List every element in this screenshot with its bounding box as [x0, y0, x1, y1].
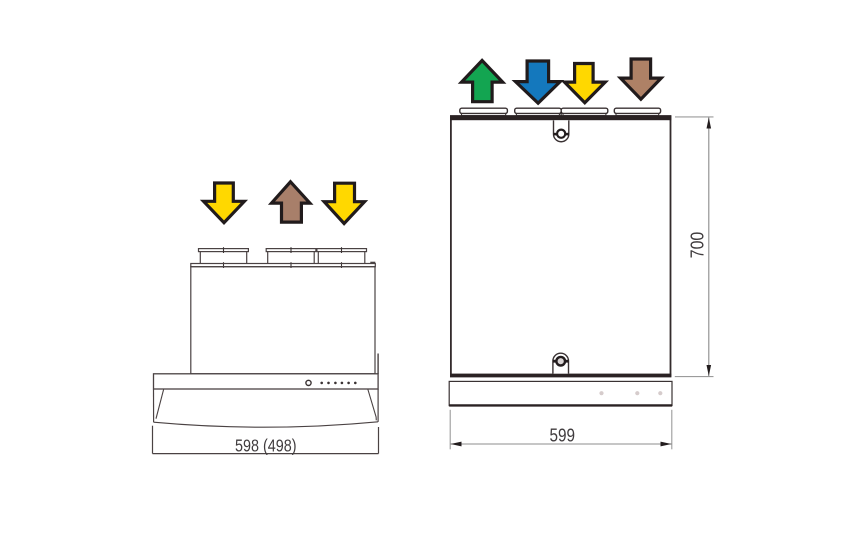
svg-text:599: 599 [550, 424, 576, 445]
svg-text:700: 700 [687, 232, 708, 259]
svg-text:598 (498): 598 (498) [235, 436, 297, 456]
